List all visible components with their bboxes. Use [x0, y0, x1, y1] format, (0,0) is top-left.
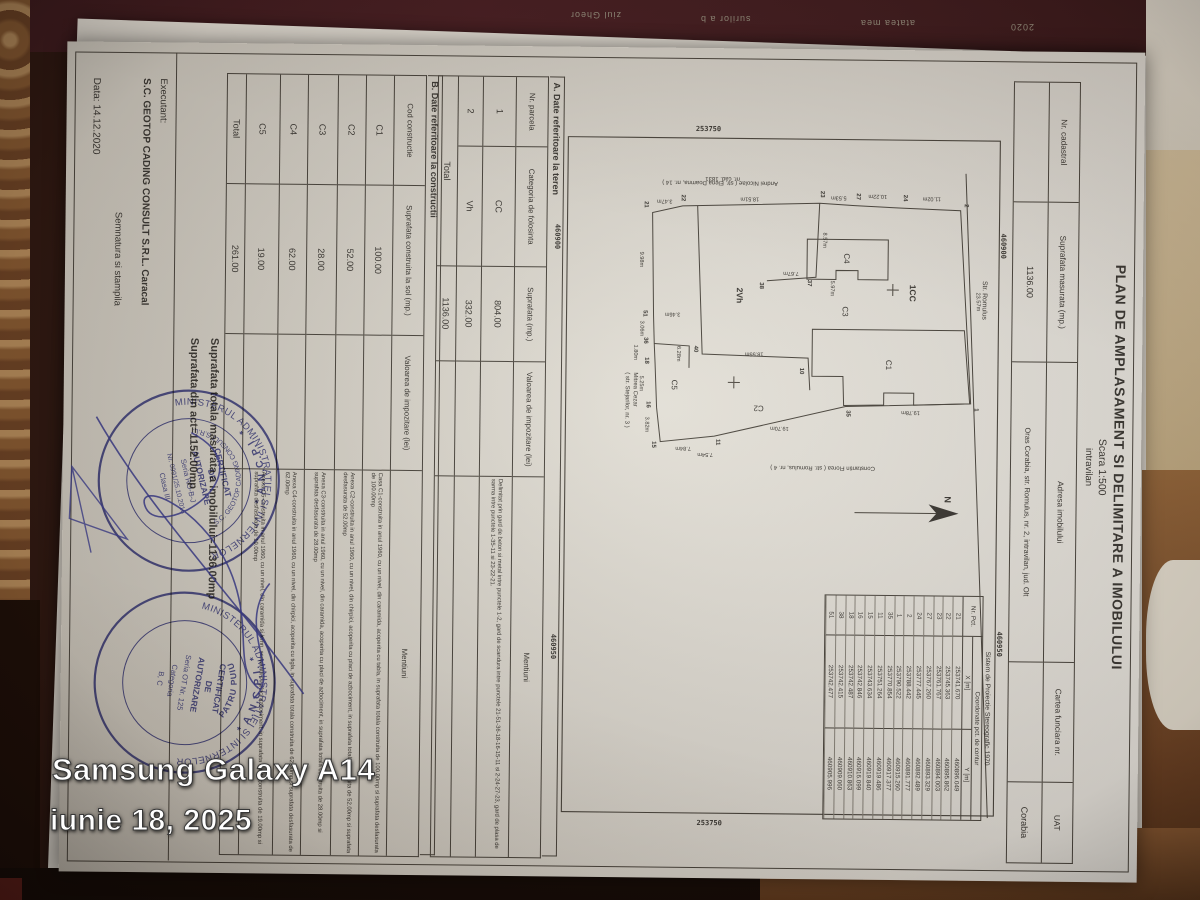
plan-dim-label: 10.22m [868, 193, 887, 199]
col-valoarea: Valoarea de impozitare (lei) [513, 362, 545, 477]
coord-cell: 460894.003 [931, 729, 942, 819]
background-cloth-blob [1146, 560, 1200, 730]
plan-point-label: 36 [642, 337, 648, 344]
plan-point-label: 40 [692, 346, 698, 353]
parcela-nr: 2 [458, 76, 483, 146]
coord-cell: 253770.854 [883, 636, 894, 729]
constructie-suprafata: 28.00 [306, 185, 337, 335]
constructie-cod: C4 [280, 75, 308, 185]
signature-label: Semnatura si stampila [112, 212, 124, 306]
plan-dim-label: 7.84m [675, 445, 691, 451]
coord-cell: 460895.862 [941, 730, 952, 820]
constructie-suprafata: 62.00 [278, 185, 307, 335]
uat-header: UAT [1042, 783, 1073, 863]
coord-cell: 460917.377 [882, 729, 893, 819]
plan-point-label: 23 [819, 191, 825, 198]
coord-cell: 253741.670 [951, 637, 962, 730]
coord-cell: 253742.415 [834, 635, 845, 728]
col-pct: Nr. Pct. [962, 597, 982, 637]
parcel-2vh-label: 2Vh [735, 288, 745, 304]
suprafata-header: Suprafata masurata (mp.) [1047, 203, 1079, 363]
col-cod: Cod constructie [394, 76, 426, 186]
plan-dim-label: 19.78m [901, 409, 920, 415]
plan-point-label: 24 [902, 195, 908, 202]
total-label: Total [227, 74, 246, 184]
plan-dim-label: 8.57m [821, 233, 827, 249]
col-suprafata-sol: Suprafata construita la sol (mp.) [392, 186, 425, 336]
background-fabric-left [0, 0, 30, 640]
building-c4-label: C4 [842, 253, 851, 264]
coord-cell: 15 [864, 596, 874, 636]
plan-dim-label: 7.54m [697, 451, 713, 457]
col-categoria: Categoria de folosinta [515, 147, 547, 267]
plan-point-label: 38 [758, 282, 764, 289]
col-group: Coordonate pct. de contur [970, 637, 982, 820]
plan-point-label: 37 [806, 280, 812, 287]
date-label: Data: 14.12.2020 [90, 78, 102, 155]
grid-cross-icon [728, 282, 899, 390]
coord-cell: 253742.477 [824, 635, 835, 728]
plan-point-label: 51 [642, 310, 648, 317]
adresa-value: Oras Corabia, str. Romulus, nr. 2, intra… [1009, 362, 1046, 662]
background-red-corner [0, 878, 22, 900]
plan-dim-label: 18.51m [740, 195, 759, 201]
coord-cell: 253742.846 [854, 636, 865, 729]
constructie-cod: C5 [246, 74, 280, 184]
coordinate-table-box: Nr. Pct. Coordonate pct. de contur X [m]… [822, 594, 983, 821]
plan-point-label: 11 [714, 439, 720, 446]
parcela-categoria: CC [482, 147, 515, 267]
plan-dim-label: 5.97m [829, 281, 835, 297]
parcela-mentiuni [451, 476, 479, 856]
plan-point-label: 35 [844, 410, 850, 417]
north-arrow-shaft [854, 513, 942, 514]
adresa-header: Adresa imobilului [1044, 363, 1077, 663]
background-text-fragment: atatea mea [860, 18, 915, 28]
constructie-valoare [363, 336, 391, 471]
coord-cell: 253745.363 [942, 637, 953, 730]
header-table: Nr. cadastral Suprafata masurata (mp.) A… [1006, 81, 1081, 864]
plan-dim-label: 23.57m [974, 292, 980, 311]
plan-point-label: 10 [798, 368, 804, 375]
col-mentiuni: Mentiuni [509, 477, 544, 857]
coord-cell: 253742.487 [844, 636, 855, 729]
plan-dim-label: 11.02m [922, 195, 941, 201]
grid-label-253750-right: 253750 [697, 819, 722, 827]
grid-label-460900-top: 460900 [999, 234, 1007, 259]
coord-cell: 35 [884, 596, 894, 636]
plan-dim-label: 18.55m [744, 350, 763, 356]
col-mentiuni: Mentiuni [387, 471, 422, 856]
parcela-categoria: Vh [457, 146, 482, 266]
col-suprafata: Suprafata (mp.) [514, 267, 546, 362]
uat-value: Corabia [1007, 782, 1042, 862]
coordinate-table-header: Nr. Pct. Coordonate pct. de contur X [m]… [960, 597, 982, 820]
coord-cell: 460916.099 [853, 729, 864, 819]
coord-cell: 460905.996 [823, 728, 834, 818]
parcela-valoare [455, 361, 480, 476]
background-text-fragment: surilor a b [700, 14, 751, 24]
coord-cell: 2 [904, 596, 914, 636]
coord-cell: 1 [894, 596, 904, 636]
watermark-date: iunie 18, 2025 [50, 804, 252, 838]
coord-cell: 253751.264 [873, 636, 884, 729]
plan-point-label: 16 [645, 401, 651, 408]
plan-point-label: 18 [643, 357, 649, 364]
plan-dim-label: 3.06m [638, 321, 644, 337]
coordinate-rows: 21253741.670460896.04922253745.363460895… [823, 595, 962, 819]
grid-label-253750-left: 253750 [696, 125, 721, 133]
coord-cell: 460896.049 [950, 730, 961, 820]
coord-cell: 253788.442 [903, 636, 914, 729]
coord-cell: 253761.767 [932, 636, 943, 729]
plan-dim-label: 3.82m [643, 417, 649, 433]
background-shadow-left [0, 600, 40, 900]
plan-point-label: 15 [650, 441, 656, 448]
cartea-funciara-header: Cartea funciara nr. [1043, 663, 1074, 783]
coord-cell: 24 [913, 596, 923, 636]
coord-cell: 11 [874, 596, 884, 636]
plan-dim-label: 6.28m [675, 346, 681, 362]
watermark-device: Samsung Galaxy A14 [52, 752, 375, 788]
plan-dimension-labels: 23.57m11.02m10.22m5.53m8.57m18.51m3.47m9… [631, 190, 982, 460]
table-teren: Nr. parcela Categoria de folosinta Supra… [430, 75, 549, 858]
pen-triangle-mark [63, 456, 136, 557]
coord-cell: 18 [845, 596, 855, 636]
col-nr-parcela: Nr. parcela [516, 77, 548, 147]
cartea-funciara-value [1008, 662, 1043, 782]
plan-dim-label: 5.25m [638, 376, 644, 392]
coord-cell: 21 [952, 597, 962, 637]
neighbor-south-2: ( str. Stejarilor, nr. 3 ) [623, 372, 630, 427]
neighbor-east: Constantin Florea ( str. Romulus, nr. 4 … [770, 464, 875, 471]
constructie-suprafata: 52.00 [336, 185, 365, 335]
background-text-fragment: 2020 [1010, 22, 1034, 32]
constructie-suprafata: 100.00 [364, 186, 393, 336]
parcela-suprafata: 804.00 [481, 267, 514, 362]
coord-cell: 460919.840 [862, 729, 873, 819]
parcela-nr: 1 [483, 77, 516, 147]
coord-cell: 16 [855, 596, 865, 636]
plan-dim-label: 1.80m [632, 345, 638, 361]
nr-cadastral-value [1014, 82, 1049, 202]
coord-cell: 460919.486 [872, 729, 883, 819]
coord-cell: 253767.260 [922, 636, 933, 729]
nr-cad-1831-label: nr. cad. 1831 [705, 175, 740, 181]
coord-cell: 460915.260 [892, 729, 903, 819]
plan-point-label: 2 [963, 204, 969, 208]
north-label: N [943, 496, 953, 503]
coord-cell: 22 [943, 597, 953, 637]
constructie-mentiuni: Anexa C2-construita in anul 1960, cu un … [331, 470, 362, 855]
coord-cell: 460893.329 [921, 729, 932, 819]
parcela-mentiuni: Delimitat prin gard de beton si metal in… [476, 477, 512, 857]
building-c2-label: C2 [753, 404, 764, 413]
col-y: Y [m] [960, 730, 971, 820]
plan-dim-label: 3.47m [657, 198, 673, 204]
grid-label-460950-top: 460950 [995, 631, 1003, 656]
coord-cell: 253777.445 [912, 636, 923, 729]
plan-dim-label: 19.70m [770, 425, 789, 431]
executant-label: Executant: [158, 78, 169, 123]
col-valoarea: Valoarea de impozitare (lei) [391, 336, 423, 471]
constructie-cod: C2 [338, 75, 366, 185]
plan-point-label: 22 [680, 194, 686, 201]
coordinate-table: Sistem de Proiectie Stereografic 1970 Nr… [822, 594, 991, 821]
col-x: X [m] [961, 637, 972, 730]
coord-cell: 460910.863 [843, 729, 854, 819]
plan-dim-label: 5.53m [831, 194, 847, 200]
constructie-suprafata: 19.00 [244, 184, 279, 334]
coord-cell: 460909.060 [833, 728, 844, 818]
parcela-suprafata: 332.00 [456, 266, 481, 361]
coord-cell: 51 [825, 595, 835, 635]
constructie-cod: C3 [308, 75, 338, 185]
plan-point-label: 21 [643, 201, 649, 208]
plan-point-labels: 2124272322215136181615113540373810 [640, 189, 981, 452]
constructie-cod: C1 [366, 76, 394, 186]
coord-cell: 23 [933, 596, 943, 636]
coord-cell: 27 [923, 596, 933, 636]
suprafata-value: 1136.00 [1012, 202, 1048, 362]
parcel-1cc-label: 1CC [908, 285, 918, 302]
background-fabric-right [1146, 150, 1200, 470]
constructie-valoare [335, 335, 363, 470]
plan-dim-label: 3.46m [664, 311, 680, 317]
plan-dim-label: 7.67m [783, 270, 799, 276]
coord-cell: 253743.634 [863, 636, 874, 729]
coord-cell: 38 [835, 595, 845, 635]
building-c3-label: C3 [841, 306, 850, 317]
total-value: 261.00 [225, 184, 245, 334]
constructie-mentiuni: Casa C1-construita in anul 1960, cu un n… [359, 470, 390, 855]
coord-cell: 253790.522 [893, 636, 904, 729]
parcela-valoare [480, 362, 513, 477]
building-c1-label: C1 [884, 360, 893, 371]
background-text-fragment: ziul Gheor [570, 10, 621, 20]
nr-cadastral-header: Nr. cadastral [1049, 83, 1080, 203]
coord-cell: 460891.777 [902, 729, 913, 819]
background-paper-right [1146, 0, 1200, 150]
building-c5-label: C5 [670, 380, 679, 391]
photo-scene: ziul Gheor surilor a b atatea mea 2020 U… [0, 0, 1200, 900]
plan-point-label: 27 [855, 193, 861, 200]
plan-dim-label: 9.98m [638, 252, 644, 268]
coord-cell: 460892.489 [911, 729, 922, 819]
